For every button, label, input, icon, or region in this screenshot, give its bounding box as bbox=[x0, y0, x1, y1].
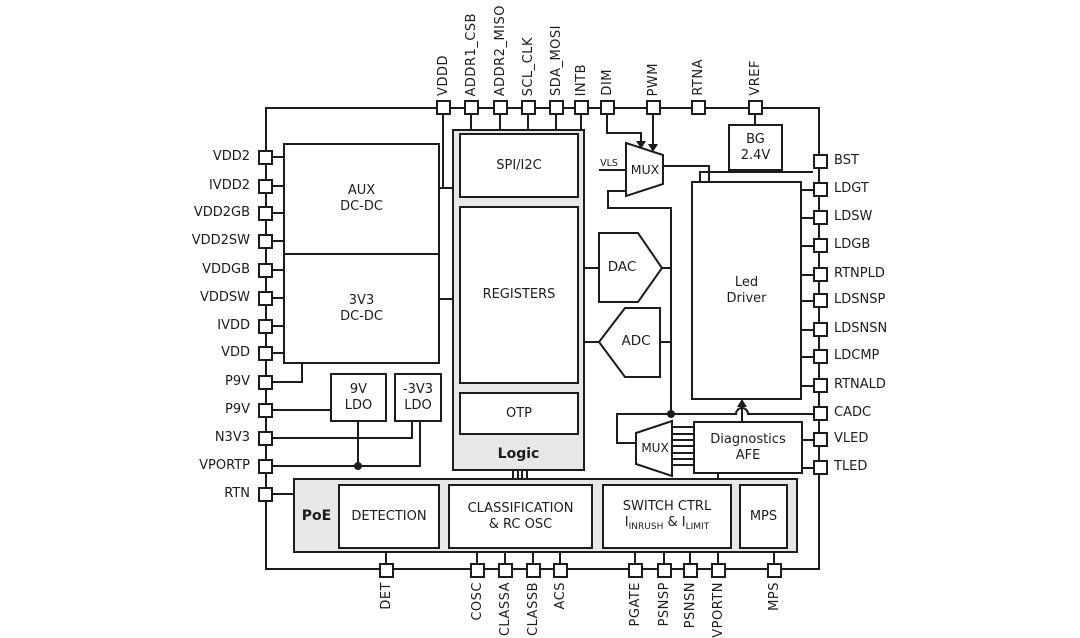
pin-vdd2sw-pad bbox=[258, 234, 273, 249]
pin-pwm-pad bbox=[646, 100, 661, 115]
block-classification: CLASSIFICATION & RC OSC bbox=[448, 484, 593, 549]
pin-vdd2-label: VDD2 bbox=[150, 148, 250, 166]
pin-p9v-1-pad bbox=[258, 375, 273, 390]
pin-mps-pad bbox=[767, 563, 782, 578]
block-switch-ctrl: SWITCH CTRL IINRUSH & ILIMIT bbox=[602, 484, 732, 549]
pin-rtnpld-label: RTNPLD bbox=[834, 265, 944, 283]
pin-ldsnsn-pad bbox=[813, 322, 828, 337]
block-label: DETECTION bbox=[351, 509, 426, 525]
pin-vdd2gb-pad bbox=[258, 206, 273, 221]
pin-tled-label: TLED bbox=[834, 458, 944, 476]
pin-ldgt-label: LDGT bbox=[834, 180, 944, 198]
mux-bottom-label: MUX bbox=[634, 440, 676, 456]
pin-p9v-1-label: P9V bbox=[150, 373, 250, 391]
pin-acs-label: ACS bbox=[551, 582, 569, 636]
pin-vdd-label: VDD bbox=[150, 344, 250, 362]
pin-vportp-label: VPORTP bbox=[150, 457, 250, 475]
pin-bst-label: BST bbox=[834, 152, 944, 170]
pin-classb-label: CLASSB bbox=[524, 582, 542, 636]
pin-acs-pad bbox=[553, 563, 568, 578]
pin-cadc-pad bbox=[813, 406, 828, 421]
pin-ivdd2-pad bbox=[258, 179, 273, 194]
pin-classa-label: CLASSA bbox=[496, 582, 514, 636]
pin-pgate-pad bbox=[628, 563, 643, 578]
pin-addr1-csb-pad bbox=[464, 100, 479, 115]
block-label: & RC OSC bbox=[489, 517, 552, 533]
pin-det-pad bbox=[379, 563, 394, 578]
dac-label: DAC bbox=[597, 259, 647, 275]
pin-vled-pad bbox=[813, 432, 828, 447]
pin-cosc-pad bbox=[470, 563, 485, 578]
pin-mps-label: MPS bbox=[765, 582, 783, 636]
pin-vref-label: VREF bbox=[746, 8, 764, 96]
pin-rtna-label: RTNA bbox=[689, 8, 707, 96]
pin-rtn-pad bbox=[258, 487, 273, 502]
pin-vddgb-label: VDDGB bbox=[150, 261, 250, 279]
poe-label: PoE bbox=[295, 484, 338, 549]
pin-tled-pad bbox=[813, 460, 828, 475]
pin-addr1-csb-label: ADDR1_CSB bbox=[462, 8, 480, 96]
block-label: MPS bbox=[750, 509, 777, 525]
pin-ldsnsn-label: LDSNSN bbox=[834, 320, 944, 338]
pin-vdd2sw-label: VDD2SW bbox=[150, 232, 250, 250]
pin-psnsp-pad bbox=[657, 563, 672, 578]
pin-pwm-label: PWM bbox=[644, 8, 662, 96]
pin-psnsn-pad bbox=[683, 563, 698, 578]
pin-vportn-label: VPORTN bbox=[709, 582, 727, 636]
pin-rtn-label: RTN bbox=[150, 485, 250, 503]
pin-p9v-2-label: P9V bbox=[150, 401, 250, 419]
pin-rtna-pad bbox=[691, 100, 706, 115]
pin-vportp-pad bbox=[258, 459, 273, 474]
pin-pgate-label: PGATE bbox=[626, 582, 644, 636]
pin-classa-pad bbox=[498, 563, 513, 578]
pin-sda-mosi-label: SDA_MOSI bbox=[547, 8, 565, 96]
pin-n3v3-label: N3V3 bbox=[150, 429, 250, 447]
block-diagram: AUX DC-DC 3V3 DC-DC 9V LDO -3V3 LDO SPI/… bbox=[0, 0, 1080, 638]
pin-bst-pad bbox=[813, 154, 828, 169]
pin-vref-pad bbox=[748, 100, 763, 115]
pin-ldgb-label: LDGB bbox=[834, 236, 944, 254]
adc-label: ADC bbox=[611, 333, 661, 349]
pin-addr2-miso-pad bbox=[493, 100, 508, 115]
mux-top-label: MUX bbox=[624, 161, 666, 177]
block-mps: MPS bbox=[739, 484, 788, 549]
pin-ldsw-pad bbox=[813, 210, 828, 225]
pin-scl-clk-label: SCL_CLK bbox=[519, 8, 537, 96]
pin-rtnald-label: RTNALD bbox=[834, 376, 944, 394]
pin-ivdd-label: IVDD bbox=[150, 317, 250, 335]
pin-vddgb-pad bbox=[258, 263, 273, 278]
pin-ldsnsp-pad bbox=[813, 293, 828, 308]
pin-ivdd-pad bbox=[258, 319, 273, 334]
vls-wire-label: VLS bbox=[594, 158, 624, 169]
pin-vportn-pad bbox=[711, 563, 726, 578]
pin-vdd-pad bbox=[258, 346, 273, 361]
pin-n3v3-pad bbox=[258, 431, 273, 446]
block-label: IINRUSH & ILIMIT bbox=[625, 515, 709, 535]
pin-vdd2gb-label: VDD2GB bbox=[150, 204, 250, 222]
pin-ldsw-label: LDSW bbox=[834, 208, 944, 226]
block-label: CLASSIFICATION bbox=[468, 501, 574, 517]
pin-cadc-label: CADC bbox=[834, 404, 944, 422]
pin-addr2-miso-label: ADDR2_MISO bbox=[491, 8, 509, 96]
pin-det-label: DET bbox=[377, 582, 395, 636]
pin-dim-pad bbox=[600, 100, 615, 115]
pin-ivdd2-label: IVDD2 bbox=[150, 177, 250, 195]
pin-vled-label: VLED bbox=[834, 430, 944, 448]
pin-ldsnsp-label: LDSNSP bbox=[834, 291, 944, 309]
pin-psnsn-label: PSNSN bbox=[681, 582, 699, 636]
block-detection: DETECTION bbox=[338, 484, 440, 549]
pin-ldcmp-label: LDCMP bbox=[834, 347, 944, 365]
pin-cosc-label: COSC bbox=[468, 582, 486, 636]
pin-ldcmp-pad bbox=[813, 349, 828, 364]
pin-ldgb-pad bbox=[813, 238, 828, 253]
pin-scl-clk-pad bbox=[521, 100, 536, 115]
pin-psnsp-label: PSNSP bbox=[655, 582, 673, 636]
pin-rtnpld-pad bbox=[813, 267, 828, 282]
pin-intb-pad bbox=[574, 100, 589, 115]
pin-classb-pad bbox=[526, 563, 541, 578]
pin-intb-label: INTB bbox=[572, 8, 590, 96]
pin-p9v-2-pad bbox=[258, 403, 273, 418]
pin-vddsw-label: VDDSW bbox=[150, 289, 250, 307]
pin-rtnald-pad bbox=[813, 378, 828, 393]
pin-vddd-label: VDDD bbox=[434, 8, 452, 96]
pin-vddd-pad bbox=[436, 100, 451, 115]
pin-vdd2-pad bbox=[258, 150, 273, 165]
pin-vddsw-pad bbox=[258, 291, 273, 306]
pin-sda-mosi-pad bbox=[549, 100, 564, 115]
block-label: SWITCH CTRL bbox=[623, 499, 711, 515]
pin-ldgt-pad bbox=[813, 182, 828, 197]
pin-dim-label: DIM bbox=[598, 8, 616, 96]
